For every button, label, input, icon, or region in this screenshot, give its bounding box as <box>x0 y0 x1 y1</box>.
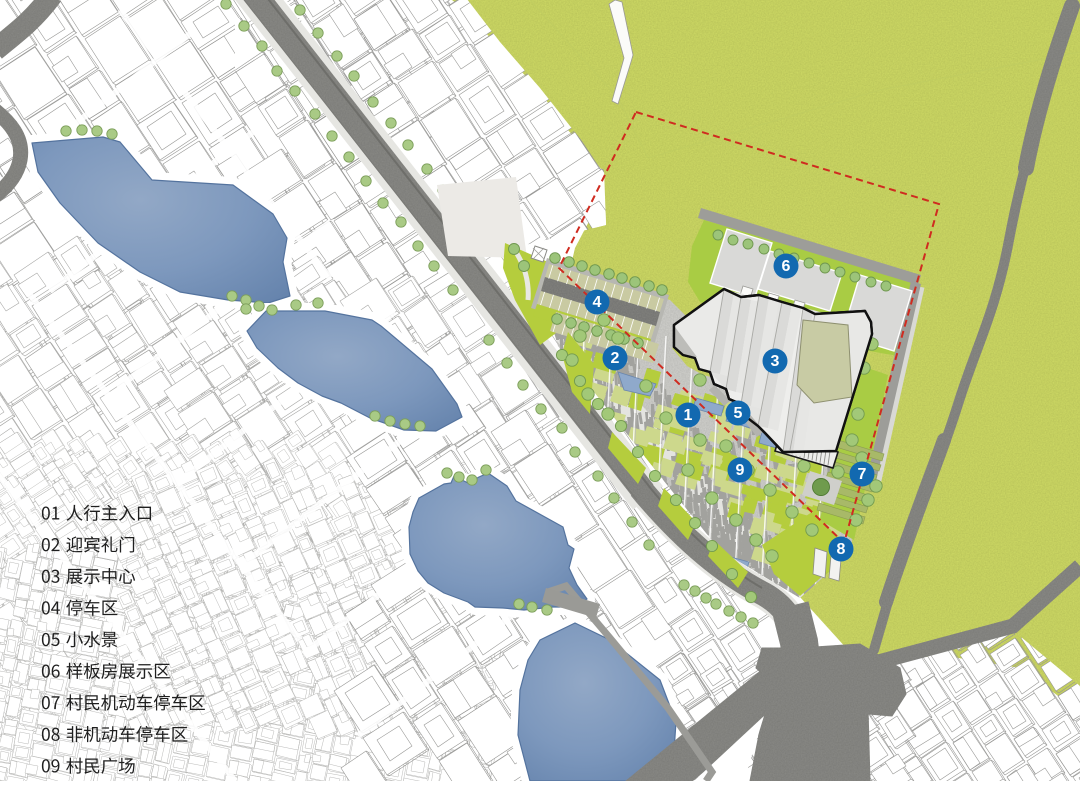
svg-text:7: 7 <box>858 466 867 483</box>
svg-text:5: 5 <box>734 405 743 422</box>
svg-text:9: 9 <box>736 462 745 479</box>
svg-text:3: 3 <box>771 353 780 370</box>
svg-text:4: 4 <box>593 294 602 311</box>
svg-text:1: 1 <box>684 407 693 424</box>
svg-text:8: 8 <box>837 541 846 558</box>
svg-text:2: 2 <box>611 350 620 367</box>
svg-text:6: 6 <box>782 258 791 275</box>
